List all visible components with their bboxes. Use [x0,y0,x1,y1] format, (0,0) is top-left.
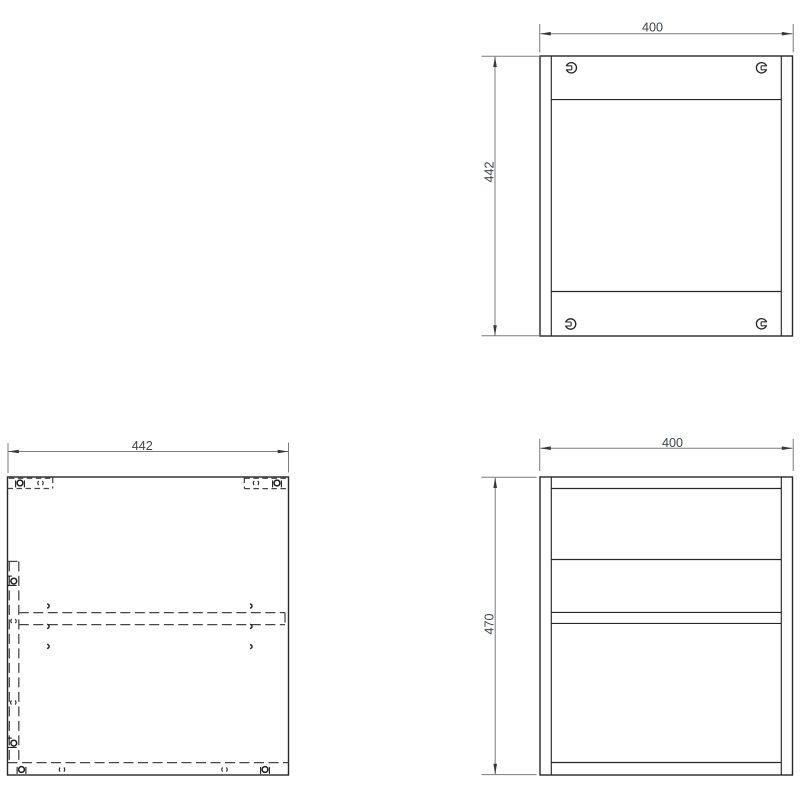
svg-text:470: 470 [483,613,497,634]
svg-text:400: 400 [662,436,683,450]
svg-text:400: 400 [642,20,663,34]
svg-text:442: 442 [482,161,496,182]
svg-text:442: 442 [132,439,153,453]
